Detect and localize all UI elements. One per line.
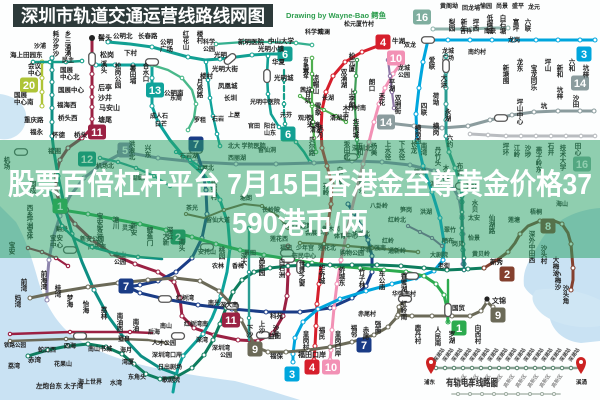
svg-text:长湖: 长湖	[322, 94, 334, 102]
svg-text:10: 10	[325, 362, 337, 374]
svg-text:红树湾南: 红树湾南	[184, 320, 208, 328]
svg-text:新塘围: 新塘围	[503, 63, 510, 85]
svg-text:耗沙步沙: 耗沙步沙	[53, 29, 60, 58]
svg-text:国展: 国展	[60, 65, 74, 74]
svg-text:向西村: 向西村	[475, 323, 482, 345]
svg-text:松岗公园: 松岗公园	[115, 61, 122, 90]
svg-text:海上田园东: 海上田园东	[10, 50, 43, 59]
svg-text:公园: 公园	[220, 351, 232, 359]
svg-text:阳台: 阳台	[264, 122, 276, 130]
svg-text:爱联: 爱联	[429, 55, 436, 71]
svg-text:强南: 强南	[375, 320, 382, 335]
svg-text:深圳湾: 深圳湾	[212, 344, 230, 352]
svg-text:中心南: 中心南	[14, 97, 34, 106]
svg-text:新生: 新生	[461, 17, 468, 33]
svg-text:10: 10	[390, 53, 402, 65]
svg-text:公园: 公园	[203, 45, 215, 53]
svg-text:怡海: 怡海	[83, 299, 90, 315]
svg-text:1: 1	[456, 323, 462, 335]
svg-text:下村: 下村	[124, 48, 138, 57]
svg-text:愉园: 愉园	[480, 2, 492, 10]
svg-text:盛平: 盛平	[512, 2, 524, 10]
svg-text:国展中心: 国展中心	[58, 85, 85, 94]
svg-text:14: 14	[574, 78, 587, 90]
svg-text:中心: 中心	[28, 68, 42, 77]
svg-text:左炮台东 太子湾: 左炮台东 太子湾	[35, 381, 84, 390]
svg-text:永湖: 永湖	[444, 107, 452, 123]
svg-text:7: 7	[361, 340, 367, 352]
svg-text:科苑: 科苑	[270, 311, 284, 320]
svg-text:凉帽山: 凉帽山	[313, 73, 320, 95]
svg-text:龙城: 龙城	[442, 47, 454, 55]
svg-text:海月: 海月	[120, 346, 132, 354]
svg-text:6: 6	[285, 129, 291, 141]
svg-text:花果山: 花果山	[54, 360, 72, 368]
svg-text:光明大街: 光明大街	[211, 64, 239, 73]
svg-text:文锦: 文锦	[492, 296, 506, 305]
svg-text:皇岗村: 皇岗村	[303, 329, 310, 351]
svg-text:松岗: 松岗	[100, 50, 114, 59]
svg-text:四联: 四联	[421, 102, 428, 117]
svg-text:沙田: 沙田	[573, 94, 580, 109]
svg-text:下沙: 下沙	[247, 324, 254, 339]
svg-text:长春路: 长春路	[138, 31, 158, 40]
svg-text:深大南: 深大南	[220, 301, 238, 309]
svg-text:老街: 老街	[437, 262, 450, 270]
svg-text:水湾: 水湾	[110, 379, 122, 387]
svg-text:南光: 南光	[208, 299, 220, 307]
svg-text:牛湖: 牛湖	[392, 36, 406, 45]
svg-text:髻头: 髻头	[98, 33, 112, 42]
svg-text:世界之窗: 世界之窗	[299, 259, 306, 288]
svg-text:南约村: 南约村	[468, 48, 486, 56]
svg-text:福海西: 福海西	[56, 100, 77, 109]
svg-text:广场: 广场	[442, 54, 454, 62]
svg-text:中心北: 中心北	[60, 72, 80, 81]
svg-text:14: 14	[380, 117, 393, 129]
svg-text:光明小镇: 光明小镇	[257, 44, 285, 53]
svg-text:华侨城: 华侨城	[318, 263, 326, 285]
svg-text:桥头: 桥头	[74, 130, 88, 139]
svg-text:新明医院: 新明医院	[238, 37, 265, 46]
svg-text:合水口: 合水口	[142, 61, 150, 83]
svg-text:11: 11	[225, 315, 237, 327]
svg-text:科学城: 科学城	[305, 28, 323, 36]
svg-text:3: 3	[581, 49, 587, 61]
svg-text:妈湾: 妈湾	[15, 293, 22, 309]
svg-text:荷坳: 荷坳	[432, 91, 440, 107]
svg-text:罗租: 罗租	[194, 116, 206, 124]
svg-text:赤尾: 赤尾	[362, 325, 370, 341]
svg-text:溪涌: 溪涌	[576, 378, 588, 386]
svg-text:侨城东: 侨城东	[338, 265, 346, 287]
svg-text:光明中医院: 光明中医院	[249, 98, 280, 106]
svg-text:白芒: 白芒	[155, 120, 167, 128]
svg-text:竹子林: 竹子林	[358, 267, 366, 289]
svg-text:龙岗: 龙岗	[508, 36, 520, 44]
svg-text:广场: 广场	[160, 44, 174, 53]
svg-text:荔湾: 荔湾	[7, 362, 20, 370]
svg-text:四海: 四海	[64, 342, 76, 350]
svg-text:双龙: 双龙	[404, 41, 416, 49]
svg-text:横岗: 横岗	[433, 121, 440, 137]
svg-text:雪象: 雪象	[315, 101, 322, 117]
svg-text:双拥街: 双拥街	[394, 94, 402, 115]
svg-text:福邻: 福邻	[350, 323, 358, 339]
svg-text:农林: 农林	[211, 262, 224, 270]
svg-text:尚景: 尚景	[496, 2, 508, 10]
svg-text:红花山: 红花山	[183, 29, 190, 51]
svg-text:深湾: 深湾	[196, 336, 208, 344]
svg-text:国展: 国展	[14, 90, 28, 99]
svg-text:重庆路: 重庆路	[24, 115, 44, 124]
svg-text:沙尾: 沙尾	[272, 324, 280, 339]
svg-text:白石塘: 白石塘	[499, 13, 507, 35]
svg-text:福田口岸: 福田口岸	[297, 350, 326, 359]
svg-text:蛇口西: 蛇口西	[38, 346, 56, 354]
svg-text:梨园: 梨园	[448, 17, 456, 33]
svg-text:六和: 六和	[568, 57, 576, 73]
svg-text:楼村: 楼村	[197, 29, 204, 45]
svg-text:上芬: 上芬	[302, 61, 310, 77]
svg-text:铁路公园: 铁路公园	[4, 341, 27, 349]
svg-text:公园: 公园	[114, 258, 126, 266]
svg-text:国贸: 国贸	[452, 303, 466, 312]
svg-text:人民南: 人民南	[435, 325, 442, 347]
svg-text:福保: 福保	[269, 351, 284, 360]
svg-text:公明: 公明	[160, 37, 174, 46]
svg-text:罗湖: 罗湖	[449, 329, 456, 345]
svg-text:登良: 登良	[117, 335, 130, 343]
svg-text:桂湾: 桂湾	[54, 283, 62, 299]
svg-text:凤凰城: 凤凰城	[218, 81, 238, 90]
svg-text:皇岗口岸: 皇岗口岸	[335, 329, 342, 358]
svg-text:乡三涌湧: 乡三涌湧	[65, 30, 72, 58]
svg-text:11: 11	[91, 127, 103, 139]
svg-text:沙井: 沙井	[98, 93, 112, 102]
svg-text:黄阁坳: 黄阁坳	[440, 2, 458, 10]
svg-text:双涌湖: 双涌湖	[341, 68, 348, 89]
svg-text:前海湾: 前海湾	[41, 269, 48, 291]
svg-text:东角头: 东角头	[128, 373, 146, 381]
svg-text:16: 16	[416, 12, 428, 24]
svg-text:大运: 大运	[441, 73, 448, 89]
svg-text:禾花: 禾花	[379, 91, 386, 107]
svg-text:后海: 后海	[148, 328, 160, 336]
svg-text:福永: 福永	[29, 127, 44, 136]
svg-text:坑: 坑	[541, 101, 548, 110]
svg-text:官田: 官田	[248, 122, 260, 130]
svg-text:4: 4	[380, 37, 387, 49]
svg-text:沙浦: 沙浦	[34, 42, 46, 50]
svg-text:坪山中心: 坪山中心	[517, 97, 524, 126]
svg-text:上屋: 上屋	[228, 111, 240, 119]
svg-text:香蜜湖: 香蜜湖	[401, 271, 408, 293]
svg-text:股票百倍杠杆平台 7月15日香港金至尊黄金价格37: 股票百倍杠杆平台 7月15日香港金至尊黄金价格37	[8, 167, 592, 201]
svg-text:木古: 木古	[342, 103, 350, 119]
svg-text:红岭南: 红岭南	[401, 299, 408, 321]
svg-text:9: 9	[252, 344, 258, 356]
svg-text:坪山: 坪山	[545, 57, 552, 73]
svg-text:3: 3	[289, 369, 295, 381]
svg-text:科学: 科学	[203, 38, 215, 46]
svg-text:4: 4	[309, 362, 316, 374]
svg-text:怀德: 怀德	[52, 130, 66, 139]
svg-text:中山大学: 中山大学	[268, 36, 295, 45]
svg-text:公园: 公园	[398, 71, 410, 79]
svg-text:新秀: 新秀	[490, 257, 504, 266]
svg-text:龙东: 龙东	[516, 57, 524, 73]
svg-text:塘尾: 塘尾	[98, 115, 112, 124]
svg-text:前湾: 前湾	[21, 277, 28, 293]
svg-text:歌剧院: 歌剧院	[162, 376, 180, 384]
svg-text:岗头: 岗头	[307, 113, 314, 129]
svg-text:马安山: 马安山	[99, 103, 120, 112]
svg-text:白石洲: 白石洲	[278, 257, 286, 279]
svg-text:光明: 光明	[213, 50, 228, 59]
svg-text:荔林: 荔林	[100, 305, 108, 321]
svg-text:南山: 南山	[160, 322, 172, 330]
svg-text:薯田埔: 薯田埔	[129, 63, 137, 85]
svg-text:坑梓: 坑梓	[583, 63, 590, 79]
svg-text:13: 13	[149, 85, 161, 97]
svg-text:人才公园: 人才公园	[152, 339, 176, 347]
svg-text:沙头角: 沙头角	[563, 284, 570, 305]
svg-text:光明城: 光明城	[273, 73, 294, 82]
svg-text:深圳湾口岸: 深圳湾口岸	[152, 351, 182, 359]
svg-text:南油: 南油	[133, 317, 140, 333]
svg-text:松元厦: 松元厦	[349, 51, 356, 73]
svg-text:华南城: 华南城	[353, 117, 360, 139]
svg-text:宝龙同乐: 宝龙同乐	[530, 63, 538, 92]
svg-text:南山书城: 南山书城	[88, 345, 112, 353]
svg-text:深圳市轨道交通运营线路线网图: 深圳市轨道交通运营线路线网图	[21, 6, 265, 26]
svg-text:7: 7	[123, 281, 129, 293]
svg-text:坪西: 坪西	[473, 17, 480, 33]
svg-text:小梅沙: 小梅沙	[554, 269, 562, 291]
svg-text:坑梓: 坑梓	[557, 85, 564, 101]
svg-text:桥头西: 桥头西	[58, 113, 78, 122]
svg-text:平湖: 平湖	[389, 78, 396, 93]
svg-text:新和: 新和	[556, 63, 564, 79]
svg-text:东周: 东周	[170, 94, 182, 102]
svg-text:溪头: 溪头	[101, 59, 108, 75]
svg-text:华夏: 华夏	[272, 57, 286, 66]
svg-text:高新园: 高新园	[259, 255, 266, 277]
svg-text:会议: 会议	[28, 61, 42, 70]
svg-text:元芬: 元芬	[280, 111, 293, 119]
svg-text:福民: 福民	[318, 325, 326, 341]
svg-text:富坪: 富坪	[513, 17, 520, 33]
svg-text:鹿丹村: 鹿丹村	[414, 323, 422, 345]
svg-text:590港币/两: 590港币/两	[232, 207, 368, 240]
svg-text:后亭: 后亭	[98, 83, 112, 92]
svg-text:车公庙: 车公庙	[379, 269, 386, 291]
svg-text:2: 2	[504, 269, 510, 281]
svg-text:赤尾村: 赤尾村	[358, 310, 376, 318]
svg-text:Drawing by Wayne-Bao 鳄鱼: Drawing by Wayne-Bao 鳄鱼	[286, 10, 387, 20]
svg-text:20: 20	[23, 80, 35, 92]
svg-text:梦海: 梦海	[67, 293, 74, 309]
svg-text:龙元: 龙元	[528, 3, 540, 11]
svg-text:赤湾: 赤湾	[28, 355, 42, 364]
svg-text:湾厦: 湾厦	[122, 358, 135, 366]
svg-text:上沙: 上沙	[259, 319, 266, 335]
svg-text:华为: 华为	[317, 123, 324, 139]
svg-text:甘坑: 甘坑	[305, 89, 312, 105]
svg-text:红树湾: 红树湾	[176, 294, 194, 302]
svg-text:月亮路: 月亮路	[196, 78, 204, 99]
svg-text:六联: 六联	[525, 17, 532, 33]
svg-text:9: 9	[495, 310, 501, 322]
svg-text:山东: 山东	[264, 129, 276, 137]
svg-text:低碳城: 低碳城	[486, 13, 494, 35]
svg-text:日出剧场: 日出剧场	[158, 363, 182, 371]
svg-text:龙城: 龙城	[398, 64, 410, 72]
svg-text:朗口: 朗口	[369, 77, 376, 93]
svg-text:有轨电车线路图: 有轨电车线路图	[446, 377, 498, 389]
svg-text:浦东: 浦东	[424, 378, 436, 386]
svg-text:长圳: 长圳	[224, 93, 238, 102]
svg-text:南油西: 南油西	[117, 311, 124, 333]
svg-text:松元厦: 松元厦	[344, 20, 363, 28]
svg-text:回龙埔: 回龙埔	[462, 4, 480, 12]
svg-text:公明北: 公明北	[113, 31, 133, 40]
svg-text:成人石: 成人石	[150, 112, 168, 120]
svg-text:竹村: 竹村	[361, 20, 374, 28]
svg-text:石岩: 石岩	[211, 115, 224, 123]
